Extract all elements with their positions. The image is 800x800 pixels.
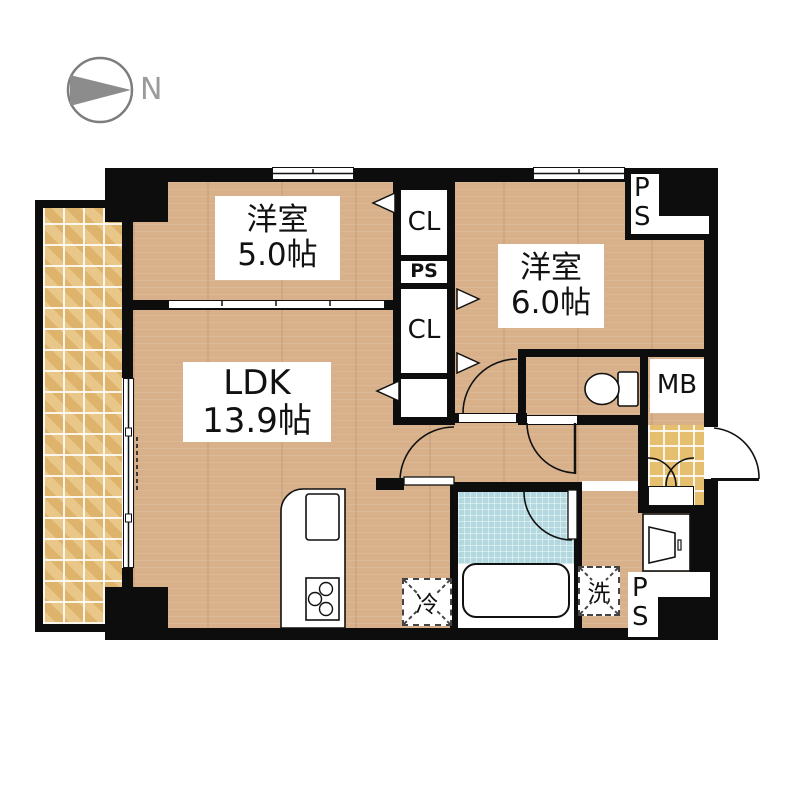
pipe-space-mid-label: PS xyxy=(401,261,447,283)
wall xyxy=(452,482,582,492)
wall xyxy=(640,357,648,417)
bedroom1-size: 5.0帖 xyxy=(237,238,317,273)
bedroom2-size: 6.0帖 xyxy=(511,286,591,321)
balcony-window xyxy=(123,378,134,568)
ldk-storage-cell xyxy=(401,379,447,417)
wall xyxy=(638,423,648,513)
window-bedroom2 xyxy=(533,167,625,180)
wall xyxy=(122,568,133,587)
compass-north-label: N xyxy=(140,72,162,107)
shoe-cabinet xyxy=(648,486,694,506)
wall xyxy=(640,505,718,513)
ldk-label: LDK 13.9帖 xyxy=(183,362,331,442)
compass-icon xyxy=(68,58,132,122)
ps-letter: P xyxy=(634,174,650,203)
bedroom2-label: 洋室 6.0帖 xyxy=(498,244,604,328)
ps-letter: P xyxy=(632,574,648,603)
wall xyxy=(658,597,718,638)
closet-top-label: CL xyxy=(401,190,447,255)
ldk-name: LDK xyxy=(223,364,290,402)
doorway-entrance xyxy=(704,427,718,479)
bedroom1-name: 洋室 xyxy=(247,203,309,238)
refrigerator-box: 冷 xyxy=(402,578,452,626)
floor-plan: 洋室 5.0帖 洋室 6.0帖 LDK 13.9帖 CL PS CL MB P … xyxy=(0,0,800,800)
doorway-toilet xyxy=(527,416,577,424)
sliding-partition xyxy=(168,300,385,309)
wall xyxy=(710,572,718,597)
ps-letter: S xyxy=(634,203,651,232)
balcony-wall xyxy=(35,624,115,632)
ldk-size: 13.9帖 xyxy=(202,402,312,440)
meter-box-label: MB xyxy=(650,359,704,413)
wall xyxy=(690,513,718,572)
washing-machine-box: 洗 xyxy=(578,566,620,616)
ps-letter: S xyxy=(632,603,649,632)
window-bedroom1 xyxy=(272,167,354,180)
bedroom2-name: 洋室 xyxy=(520,251,582,286)
doorway-washroom xyxy=(582,481,638,491)
bathroom-floor xyxy=(458,490,574,564)
wall xyxy=(122,222,133,310)
wall xyxy=(704,238,718,427)
bedroom1-label: 洋室 5.0帖 xyxy=(215,196,340,280)
balcony-wall xyxy=(35,200,115,208)
pipe-space-bottom-right-label: P S xyxy=(632,574,649,631)
balcony-floor xyxy=(43,208,122,624)
refrigerator-label: 冷 xyxy=(416,585,439,619)
balcony-wall xyxy=(35,200,43,632)
wall xyxy=(376,478,404,490)
washing-machine-label: 洗 xyxy=(588,574,611,608)
pipe-space-top-right-label: P S xyxy=(634,174,651,231)
wall xyxy=(122,310,133,378)
kitchen-wall-stub xyxy=(296,563,305,628)
bathtub-zone xyxy=(458,564,574,628)
doorway-bedroom2 xyxy=(459,414,516,422)
wall xyxy=(518,349,718,357)
closet-mid-label: CL xyxy=(401,289,447,373)
